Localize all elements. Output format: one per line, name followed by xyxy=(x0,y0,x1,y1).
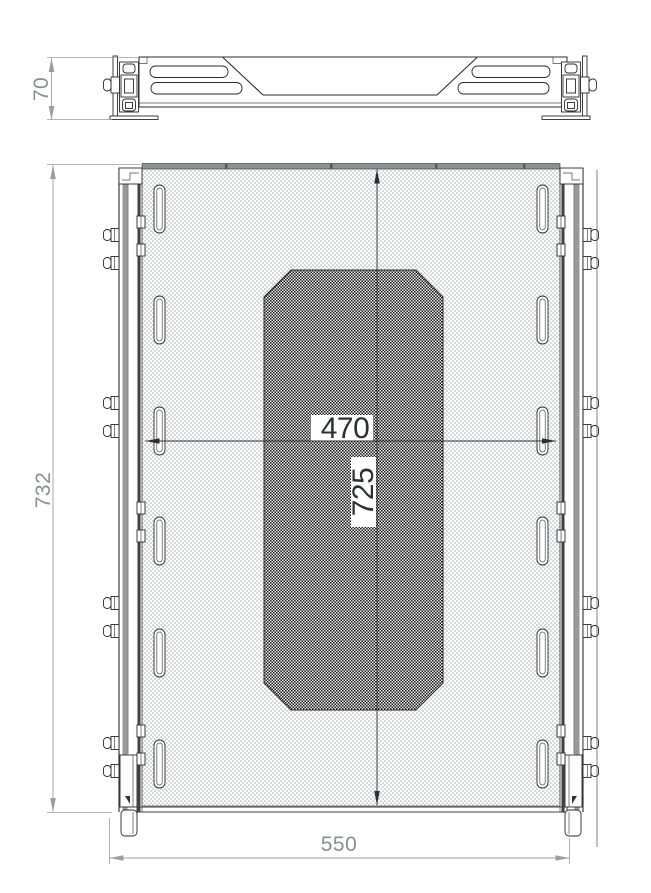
top-edge-tick xyxy=(225,164,228,169)
top-edge-tick xyxy=(523,164,526,169)
top-edge-tick xyxy=(435,164,438,169)
technical-drawing-page: 70 732 550 470 725 xyxy=(0,0,651,893)
dim-550-label: 550 xyxy=(321,833,358,856)
dim-732-label: 732 xyxy=(32,472,55,509)
panel-top-edge xyxy=(142,164,560,170)
dimension-overall-width: 550 xyxy=(110,818,570,864)
panel-bottom-rail xyxy=(137,807,567,812)
dim-470-label: 470 xyxy=(321,412,370,445)
front-crossbar xyxy=(139,57,567,107)
side-elevation-view xyxy=(104,56,597,120)
dim-70-label: 70 xyxy=(30,77,53,101)
drawing-sheet: 70 732 550 470 725 xyxy=(0,0,651,893)
dim-725-label: 725 xyxy=(347,468,380,517)
top-edge-tick xyxy=(330,164,333,169)
